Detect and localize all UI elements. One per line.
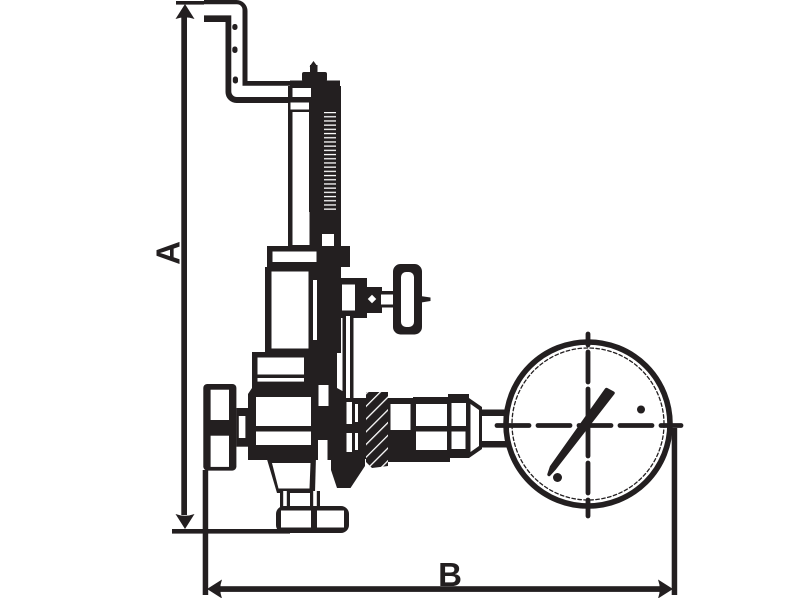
svg-text:B: B bbox=[438, 556, 462, 593]
svg-text:A: A bbox=[150, 241, 187, 265]
